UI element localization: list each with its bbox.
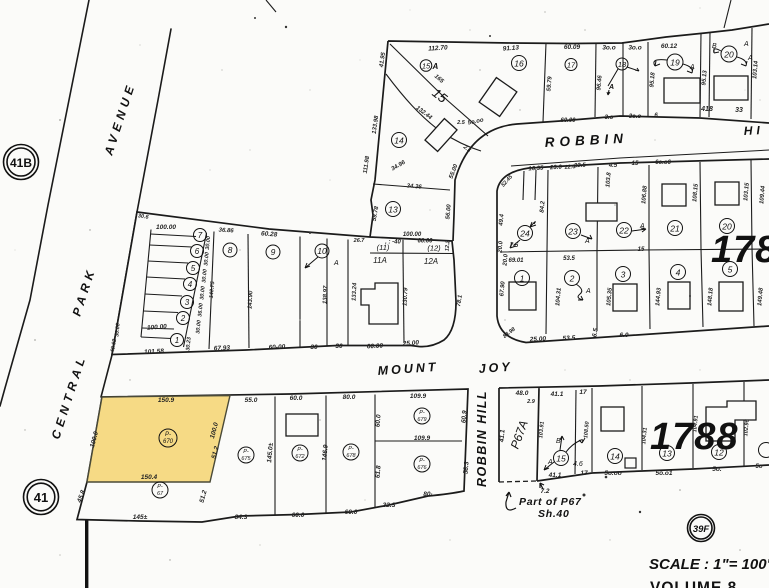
svg-text:60.0: 60.0 — [345, 509, 358, 516]
svg-text:P-: P- — [419, 458, 425, 464]
svg-text:150.9: 150.9 — [158, 397, 175, 404]
svg-text:8: 8 — [228, 245, 233, 255]
svg-text:30.00: 30.00 — [195, 320, 202, 334]
svg-text:15: 15 — [556, 454, 566, 464]
svg-text:84.3: 84.3 — [235, 514, 248, 521]
svg-text:41: 41 — [34, 490, 48, 505]
svg-text:60.0: 60.0 — [292, 512, 305, 519]
svg-text:41.1: 41.1 — [498, 429, 506, 444]
svg-text:3: 3 — [185, 298, 190, 307]
svg-text:24: 24 — [519, 229, 530, 239]
svg-text:SCALE : 1"= 100': SCALE : 1"= 100' — [649, 556, 769, 573]
svg-text:17: 17 — [567, 61, 576, 70]
svg-text:30: 30 — [310, 344, 318, 351]
svg-text:60.0: 60.0 — [290, 395, 303, 402]
svg-text:109.9: 109.9 — [414, 435, 431, 442]
svg-text:16: 16 — [514, 59, 524, 69]
svg-text:21: 21 — [669, 224, 680, 234]
svg-text:20: 20 — [723, 50, 734, 60]
svg-text:30.23: 30.23 — [185, 337, 192, 351]
svg-text:6.0: 6.0 — [619, 332, 628, 339]
svg-text:A: A — [639, 223, 645, 230]
svg-text:145±: 145± — [133, 514, 148, 521]
svg-text:P-: P- — [243, 449, 249, 455]
svg-text:80·: 80· — [423, 491, 432, 498]
svg-text:30.00: 30.00 — [205, 236, 212, 250]
svg-text:4.5: 4.5 — [608, 163, 618, 169]
svg-text:3o.o: 3o.o — [628, 45, 641, 52]
svg-text:A: A — [432, 62, 439, 71]
svg-text:A: A — [547, 459, 553, 466]
svg-text:9: 9 — [271, 247, 276, 257]
svg-text:A: A — [584, 238, 590, 245]
svg-text:P-: P- — [297, 447, 303, 453]
svg-text:36.86: 36.86 — [218, 227, 234, 234]
svg-text:12.2: 12.2 — [445, 240, 452, 251]
svg-text:3o.o: 3o.o — [629, 114, 642, 120]
svg-text:P-: P- — [157, 484, 163, 490]
svg-text:60.9: 60.9 — [460, 410, 468, 424]
svg-text:60.00: 60.00 — [560, 118, 576, 124]
svg-text:61.8: 61.8 — [374, 465, 382, 479]
svg-text:30.00: 30.00 — [114, 323, 121, 337]
svg-text:32.5: 32.5 — [574, 163, 587, 170]
svg-text:23.6: 23.6 — [549, 165, 563, 172]
svg-text:- 30: - 30 — [331, 343, 343, 350]
svg-text:676: 676 — [417, 465, 427, 471]
svg-text:91.13: 91.13 — [503, 44, 520, 52]
svg-text:39F: 39F — [693, 524, 710, 535]
svg-text:69.01: 69.01 — [508, 258, 524, 264]
svg-text:67.93: 67.93 — [214, 345, 231, 353]
svg-text:5o: 5o — [755, 464, 762, 470]
svg-text:6o.o6: 6o.o6 — [655, 160, 671, 166]
svg-text:679: 679 — [417, 417, 426, 423]
svg-text:30.00: 30.00 — [203, 252, 210, 266]
svg-text:19: 19 — [670, 58, 680, 68]
svg-text:36.00: 36.00 — [197, 303, 204, 317]
svg-text:41.1: 41.1 — [550, 391, 564, 398]
svg-text:67: 67 — [157, 491, 164, 497]
svg-text:80.0: 80.0 — [343, 394, 356, 401]
svg-text:B: B — [556, 438, 561, 445]
svg-text:53.5: 53.5 — [563, 256, 575, 262]
svg-text:ROBBIN HILL: ROBBIN HILL — [475, 390, 489, 487]
svg-text:5o.oo: 5o.oo — [604, 470, 621, 477]
svg-text:48.0: 48.0 — [515, 390, 529, 397]
svg-text:5o.: 5o. — [712, 466, 722, 473]
svg-text:23: 23 — [567, 227, 578, 237]
svg-text:P-: P- — [348, 446, 354, 452]
svg-text:143.90: 143.90 — [248, 290, 255, 309]
svg-text:100.00: 100.00 — [147, 323, 168, 331]
svg-text:15: 15 — [422, 62, 431, 71]
svg-text:11A: 11A — [373, 256, 387, 265]
svg-text:4.6: 4.6 — [573, 461, 583, 468]
svg-text:4: 4 — [188, 280, 193, 289]
svg-text:675: 675 — [241, 456, 251, 462]
svg-text:109.9: 109.9 — [410, 393, 427, 400]
svg-text:1: 1 — [520, 274, 525, 284]
svg-text:15: 15 — [638, 247, 645, 253]
svg-text:2.9: 2.9 — [526, 399, 536, 405]
svg-text:133.24: 133.24 — [352, 282, 359, 301]
svg-text:HI: HI — [743, 123, 764, 138]
svg-text:60.09: 60.09 — [564, 44, 581, 51]
svg-text:7.5: 7.5 — [510, 243, 519, 249]
svg-text:7: 7 — [198, 231, 203, 240]
svg-text:6: 6 — [195, 247, 200, 256]
svg-text:3: 3 — [621, 270, 626, 280]
svg-text:12A: 12A — [424, 257, 438, 266]
svg-text:A: A — [608, 84, 614, 91]
svg-text:13: 13 — [388, 205, 398, 215]
svg-text:418: 418 — [700, 106, 713, 113]
svg-text:20.0: 20.0 — [497, 240, 504, 254]
svg-text:7.2: 7.2 — [540, 488, 549, 495]
svg-text:60-00: 60-00 — [268, 344, 285, 352]
svg-text:30.00: 30.00 — [201, 269, 208, 283]
svg-text:670: 670 — [163, 439, 174, 445]
svg-text:25.00: 25.00 — [529, 336, 547, 344]
svg-text:672: 672 — [295, 454, 304, 460]
svg-text:100.00: 100.00 — [156, 224, 176, 231]
svg-text:5: 5 — [191, 264, 196, 273]
svg-text:178: 178 — [711, 229, 769, 271]
svg-text:VOLUME 8: VOLUME 8 — [650, 580, 737, 588]
svg-text:10: 10 — [317, 246, 327, 256]
svg-text:Part of P67: Part of P67 — [519, 496, 582, 508]
svg-text:2: 2 — [180, 314, 186, 323]
svg-text:14: 14 — [394, 136, 404, 146]
svg-text:41B: 41B — [10, 156, 32, 170]
svg-text:B: B — [712, 43, 717, 50]
svg-text:58.3: 58.3 — [462, 461, 470, 475]
svg-text:5o.o1: 5o.o1 — [656, 470, 673, 477]
svg-text:112.70: 112.70 — [428, 44, 448, 52]
svg-text:60.28: 60.28 — [261, 230, 278, 238]
svg-text:60.00: 60.00 — [417, 239, 433, 245]
svg-text:25.00: 25.00 — [402, 339, 420, 347]
svg-text:P-: P- — [165, 432, 171, 438]
svg-text:A: A — [585, 288, 591, 295]
svg-text:55.0: 55.0 — [245, 397, 258, 404]
svg-text:15: 15 — [632, 161, 639, 167]
svg-text:100.00: 100.00 — [403, 232, 422, 238]
svg-text:60.12: 60.12 — [661, 43, 678, 50]
svg-text:2.5: 2.5 — [456, 120, 466, 126]
svg-text:17: 17 — [580, 470, 588, 477]
svg-text:26.7: 26.7 — [353, 238, 366, 244]
svg-text:60.0: 60.0 — [374, 414, 382, 428]
svg-text:18: 18 — [618, 60, 627, 69]
svg-text:146.9: 146.9 — [321, 444, 329, 461]
svg-text:41.1: 41.1 — [548, 472, 562, 479]
svg-text:84.2: 84.2 — [540, 200, 547, 213]
svg-text:A: A — [747, 55, 753, 62]
svg-text:2: 2 — [569, 274, 575, 284]
svg-text:101.58: 101.58 — [144, 348, 165, 356]
svg-text:, : -40: , : -40 — [384, 240, 401, 246]
svg-text:3.o: 3.o — [605, 115, 614, 121]
svg-text:JOY: JOY — [478, 360, 513, 376]
svg-text:30.00: 30.00 — [199, 286, 206, 300]
svg-text:A: A — [743, 41, 749, 48]
svg-text:A: A — [333, 260, 339, 267]
svg-text:4: 4 — [676, 268, 681, 278]
svg-text:138.97: 138.97 — [323, 285, 330, 304]
svg-text:17: 17 — [579, 389, 587, 396]
svg-text:53.5: 53.5 — [562, 335, 575, 343]
svg-text:678: 678 — [346, 453, 356, 459]
svg-text:(12): (12) — [427, 244, 441, 253]
svg-text:130.79: 130.79 — [403, 287, 410, 306]
svg-text:Sh.40: Sh.40 — [538, 508, 570, 520]
svg-text:A: A — [689, 64, 695, 71]
svg-text:22: 22 — [618, 226, 629, 236]
svg-text:33: 33 — [735, 107, 743, 114]
svg-text:14: 14 — [610, 452, 620, 462]
svg-text:P-: P- — [419, 410, 425, 416]
svg-text:49.4: 49.4 — [498, 213, 505, 227]
svg-text:150.4: 150.4 — [141, 474, 158, 481]
svg-text:1: 1 — [175, 336, 179, 345]
svg-text:60.00: 60.00 — [367, 343, 384, 351]
svg-text:16.35: 16.35 — [528, 165, 544, 172]
svg-text:3o.o: 3o.o — [602, 45, 615, 52]
svg-text:32.3: 32.3 — [383, 502, 396, 509]
